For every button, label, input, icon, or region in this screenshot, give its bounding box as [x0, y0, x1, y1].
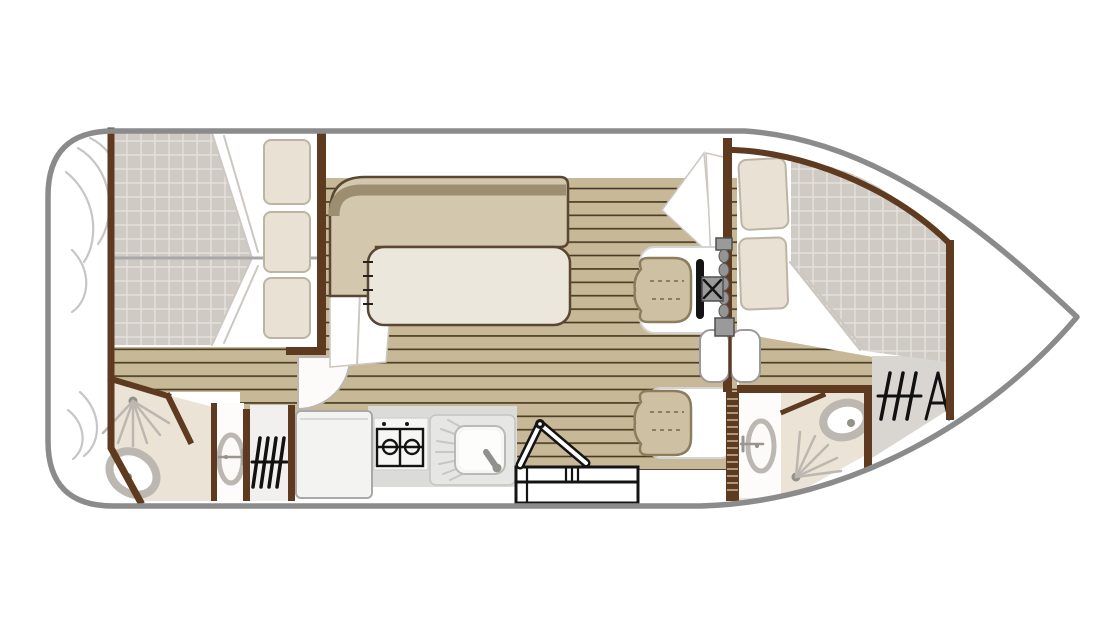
- step-tread: [516, 482, 638, 503]
- console-box: [715, 318, 734, 336]
- faucet-dot: [755, 444, 759, 448]
- instrument-knob: [719, 305, 729, 318]
- guest-seat: [635, 391, 691, 455]
- pillow: [264, 212, 310, 272]
- bath-partition: [211, 403, 217, 501]
- louvered-door: [726, 392, 739, 501]
- boat-floor-plan: [0, 0, 1120, 640]
- pillow: [738, 158, 789, 230]
- door-leaf-right: [731, 330, 760, 382]
- handrail-joint-center: [538, 422, 542, 426]
- stove-knob: [405, 422, 409, 426]
- door-leaf-left: [700, 330, 729, 382]
- helm-seat: [635, 258, 691, 322]
- faucet-dot: [224, 455, 228, 459]
- faucet-base: [493, 464, 502, 473]
- salon-table: [368, 247, 570, 325]
- bath-partition: [243, 409, 250, 501]
- instrument-knob: [719, 264, 729, 277]
- aft-cabin: [113, 133, 319, 347]
- guest-seat-area: [635, 388, 734, 458]
- galley: [293, 406, 517, 503]
- bath-partition: [288, 405, 295, 501]
- toilet-flush: [847, 419, 855, 427]
- double-swing-door: [700, 330, 760, 382]
- console-box: [716, 238, 732, 250]
- aft-bulkhead-stub: [286, 347, 326, 355]
- bow-bulkhead: [946, 240, 954, 420]
- louvered-door-body: [726, 392, 739, 501]
- pillow: [264, 140, 310, 204]
- stove-knob: [382, 422, 386, 426]
- aft-bulkhead: [317, 131, 326, 355]
- forward-bathroom: [739, 393, 871, 501]
- fwd-bath-side-wall: [864, 393, 872, 470]
- fwd-bath-top-wall: [737, 385, 872, 393]
- cockpit-sole-white: [638, 470, 728, 503]
- fridge: [296, 411, 372, 498]
- instrument-knob: [719, 250, 729, 263]
- boat-floor-plan-svg: [0, 0, 1120, 640]
- washbasin: [219, 435, 243, 483]
- washbasin: [748, 421, 774, 471]
- pillow: [264, 278, 310, 338]
- pillow: [739, 237, 788, 310]
